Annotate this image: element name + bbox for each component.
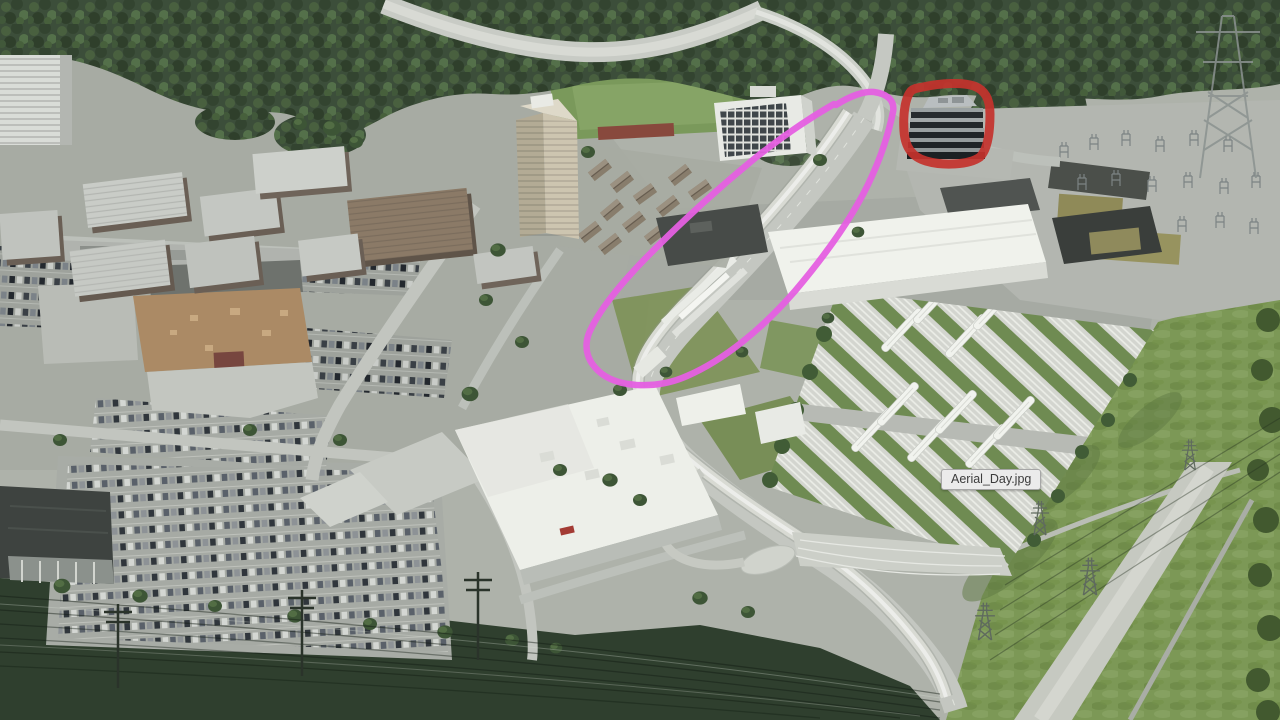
brown-midrise	[347, 187, 477, 268]
dark-roof-building	[0, 486, 114, 584]
annotated-aerial-image: Aerial_Day.jpg	[0, 0, 1280, 720]
filename-tooltip: Aerial_Day.jpg	[941, 469, 1041, 490]
filename-label: Aerial_Day.jpg	[951, 472, 1031, 486]
aerial-photo	[0, 0, 1280, 720]
